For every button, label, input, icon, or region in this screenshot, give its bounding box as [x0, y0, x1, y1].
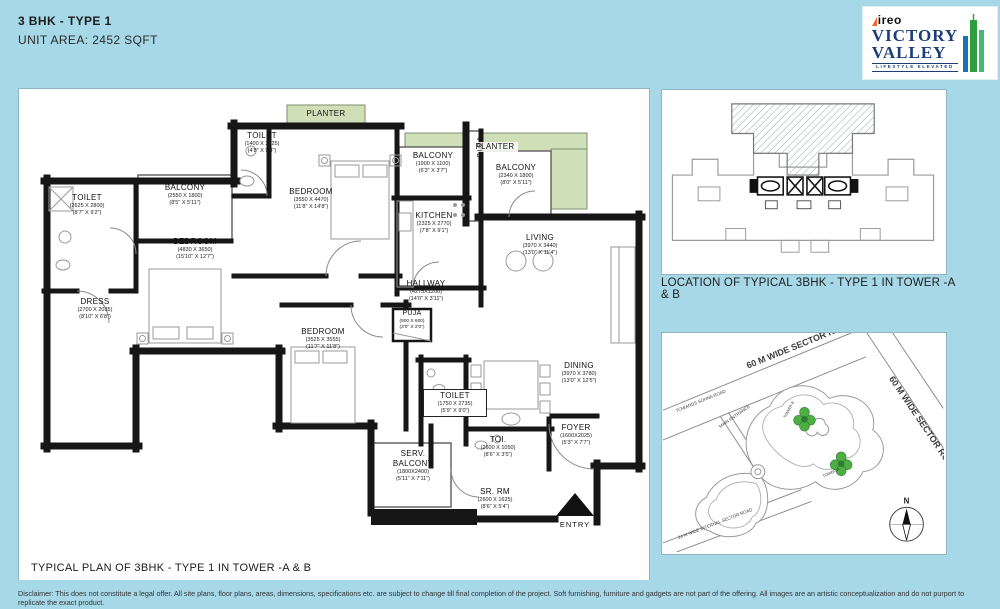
room-label-toilet-mid: TOILET(1750 X 2735)(5'9" X 9'0") [423, 389, 487, 417]
site-map-panel: 60 M WIDE SECTOR ROAD 60 M WIDE SECTOR R… [661, 332, 947, 555]
room-label-balcony-living: BALCONY(2340 X 1800)(8'0" X 5'11") [481, 163, 551, 187]
page-title: 3 BHK - TYPE 1 [18, 14, 112, 28]
main-entrance-label: MAIN ENTRANCE [718, 404, 751, 429]
location-caption: LOCATION OF TYPICAL 3BHK - TYPE 1 IN TOW… [661, 277, 961, 301]
entry-label: ENTRY [553, 520, 597, 529]
brand-victory: VICTORY [872, 27, 958, 44]
planter-top-label: PLANTER [287, 109, 365, 119]
unit-area: UNIT AREA: 2452 SQFT [18, 33, 158, 47]
room-label-serv-balcony: SERV. BALCONY(1800X2400)(5'11" X 7'11") [379, 449, 447, 483]
room-label-bedroom-left: BEDROOM(4830 X 3650)(15'10" X 12'7") [153, 237, 237, 261]
void-label: VOID [468, 137, 481, 160]
room-label-toi: TOI.(2600 X 1050)(8'6" X 3'5") [467, 435, 529, 459]
compass: N [890, 496, 924, 541]
room-label-balcony-left: BALCONY(2550 X 1800)(8'5" X 5'11") [145, 183, 225, 207]
floor-plan-drawing [19, 89, 649, 559]
site-map-drawing: 60 M WIDE SECTOR ROAD 60 M WIDE SECTOR R… [662, 333, 944, 552]
room-label-sr-rm: SR. RM(2600 X 1625)(8'6" X 5'4") [461, 487, 529, 511]
room-label-dress: DRESS(2700 X 2035)(8'10" X 6'8") [59, 297, 131, 321]
room-label-balcony-kitchen: BALCONY(1900 X 1100)(6'3" X 3'7") [401, 151, 465, 175]
brand-ireo: ireo [878, 14, 902, 26]
room-label-hallway: HALLWAY(4275X1200)(14'0" X 3'11") [387, 279, 465, 303]
compass-north-label: N [904, 496, 910, 505]
brand-logo: ireo VICTORY VALLEY LIFESTYLE ELEVATED [862, 6, 998, 80]
room-label-toilet-top: TOILET(1400 X 2825)(4'8" X 9'3") [227, 131, 297, 155]
room-label-puja: PUJA(900 X 600)(3'0" X 2'0") [394, 310, 430, 331]
road-right-label: 60 M WIDE SECTOR ROAD [887, 374, 944, 474]
room-label-toilet-left: TOILET(2625 X 2800)(8'7" X 9'2") [51, 193, 123, 217]
plan-caption: TYPICAL PLAN OF 3BHK - TYPE 1 IN TOWER -… [31, 562, 311, 574]
room-label-bedroom-top: BEDROOM(3550 X 4470)(11'8" X 14'8") [271, 187, 351, 211]
brand-tagline: LIFESTYLE ELEVATED [872, 63, 958, 72]
wall-bottom-band [371, 509, 477, 525]
ireo-triangle-icon [872, 17, 877, 26]
room-label-kitchen: KITCHEN(2325 X 2770)(7'8" X 9'1") [403, 211, 465, 235]
room-label-dining: DINING(3970 X 3780)(13'0" X 12'5") [542, 361, 616, 385]
brand-valley: VALLEY [872, 44, 947, 61]
tower-logo-icon [962, 14, 988, 72]
room-label-foyer: FOYER(1600X2025)(5'3" X 7'7") [547, 423, 605, 447]
room-label-bedroom-mid: BEDROOM(3525 X 3555)(11'7" X 11'8") [281, 327, 365, 351]
tower-location-diagram [662, 90, 944, 272]
towards-sohna-label: TOWARDS SOHNA ROAD [675, 389, 726, 414]
brand-text-block: ireo VICTORY VALLEY LIFESTYLE ELEVATED [872, 14, 958, 72]
floor-plan-panel: PLANTER PLANTER VOID ENTRY TOILET(1400 X… [18, 88, 650, 581]
tower-location-panel [661, 89, 947, 275]
disclaimer-text: Disclaimer: This does not constitute a l… [18, 589, 993, 607]
entry-arrow-icon [556, 493, 594, 516]
planter-right-block [551, 149, 587, 209]
room-label-living: LIVING(3970 X 3440)(13'0" X 11'4") [507, 233, 573, 257]
